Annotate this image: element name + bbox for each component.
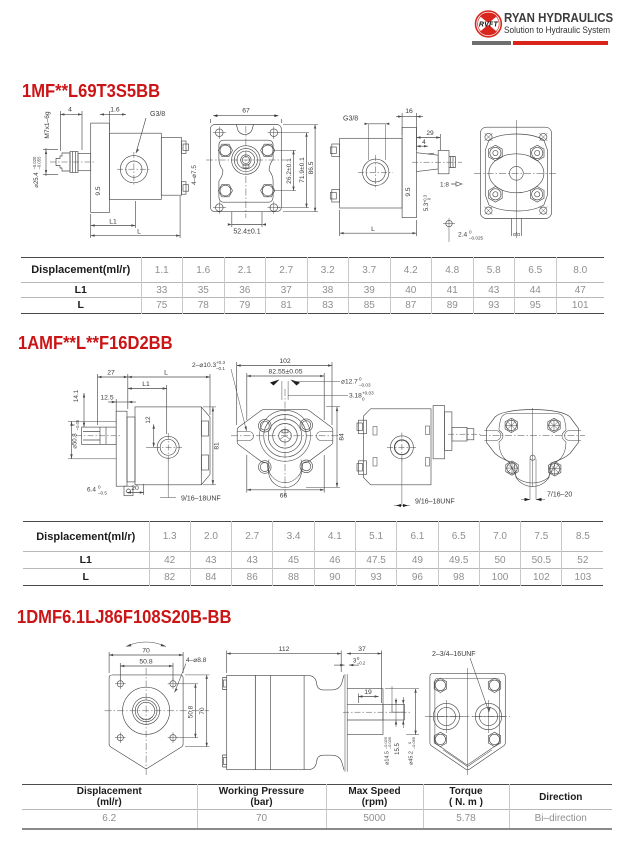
- svg-text:G3/8: G3/8: [150, 111, 165, 118]
- svg-text:–0.5: –0.5: [98, 491, 107, 496]
- svg-text:–0.03: –0.03: [359, 383, 371, 388]
- svg-text:–0.035: –0.035: [387, 736, 392, 749]
- svg-text:1.6: 1.6: [110, 107, 120, 114]
- svg-text:9.5: 9.5: [405, 187, 412, 196]
- svg-text:L1: L1: [109, 219, 117, 226]
- svg-text:2–⌀10.3: 2–⌀10.3: [192, 362, 216, 369]
- svg-text:4–⌀8.8: 4–⌀8.8: [186, 657, 207, 664]
- svg-text:+0.03: +0.03: [362, 391, 374, 396]
- svg-text:50.8: 50.8: [139, 659, 152, 666]
- svg-text:19: 19: [364, 689, 372, 696]
- svg-text:3.18: 3.18: [349, 393, 362, 400]
- svg-text:–0.2: –0.2: [357, 661, 366, 666]
- svg-text:⌀45.2: ⌀45.2: [409, 751, 415, 765]
- svg-text:1:8: 1:8: [440, 182, 449, 189]
- svg-text:4–⌀7.5: 4–⌀7.5: [191, 165, 198, 185]
- svg-text:70: 70: [142, 648, 150, 655]
- svg-text:6.4: 6.4: [87, 487, 96, 494]
- svg-text:⌀12.7: ⌀12.7: [341, 379, 358, 386]
- svg-text:9.5: 9.5: [95, 186, 102, 195]
- svg-text:16: 16: [405, 108, 413, 115]
- svg-text:L1: L1: [142, 381, 150, 388]
- svg-text:20: 20: [131, 485, 139, 492]
- svg-text:α/α: α/α: [513, 232, 520, 238]
- svg-text:0: 0: [362, 397, 365, 402]
- svg-text:0: 0: [98, 485, 101, 490]
- svg-text:84: 84: [339, 433, 346, 441]
- svg-text:L: L: [164, 370, 168, 377]
- svg-text:⌀14.5: ⌀14.5: [385, 751, 391, 765]
- svg-text:L: L: [137, 229, 141, 236]
- svg-text:71.9±0.1: 71.9±0.1: [299, 157, 306, 183]
- svg-text:4: 4: [422, 139, 426, 146]
- svg-text:102: 102: [279, 358, 291, 365]
- svg-text:82.55±0.05: 82.55±0.05: [269, 368, 303, 375]
- svg-text:+0.3: +0.3: [216, 360, 226, 365]
- svg-text:86.5: 86.5: [308, 161, 315, 174]
- svg-text:70: 70: [199, 707, 206, 715]
- svg-text:81: 81: [214, 442, 221, 450]
- svg-text:27: 27: [107, 370, 115, 377]
- svg-text:9/16–18UNF: 9/16–18UNF: [415, 499, 455, 506]
- svg-text:0: 0: [469, 230, 472, 235]
- svg-text:2.4: 2.4: [458, 232, 467, 239]
- svg-text:26.2±0.1: 26.2±0.1: [286, 158, 293, 184]
- svg-text:12.5: 12.5: [100, 395, 113, 402]
- svg-text:G3/8: G3/8: [343, 116, 358, 123]
- svg-text:M7x1–6g: M7x1–6g: [44, 111, 51, 138]
- svg-text:–0.1: –0.1: [216, 366, 225, 371]
- svg-text:⌀50.8: ⌀50.8: [73, 433, 79, 449]
- svg-text:50.8: 50.8: [188, 705, 195, 718]
- svg-text:15.5: 15.5: [395, 743, 401, 755]
- svg-text:–0.05: –0.05: [75, 419, 80, 430]
- svg-text:52.4±0.1: 52.4±0.1: [233, 229, 260, 236]
- svg-text:66: 66: [280, 493, 288, 500]
- svg-text:12: 12: [145, 416, 152, 424]
- svg-text:–0.065: –0.065: [411, 736, 416, 749]
- svg-text:29: 29: [426, 130, 434, 137]
- svg-text:4: 4: [68, 107, 72, 114]
- svg-text:112: 112: [279, 646, 290, 653]
- svg-text:37: 37: [358, 646, 366, 653]
- svg-text:0: 0: [359, 377, 362, 382]
- svg-text:67: 67: [242, 107, 250, 114]
- svg-text:9/16–18UNF: 9/16–18UNF: [181, 496, 221, 503]
- svg-text:–0.055: –0.055: [37, 156, 42, 169]
- svg-text:2–3/4–16UNF: 2–3/4–16UNF: [432, 651, 476, 658]
- svg-text:–0.025: –0.025: [469, 236, 483, 241]
- svg-text:L: L: [371, 226, 375, 233]
- svg-text:⌀25.4: ⌀25.4: [34, 172, 40, 188]
- svg-text:7/16–20: 7/16–20: [547, 492, 572, 499]
- svg-text:14.1: 14.1: [73, 389, 80, 402]
